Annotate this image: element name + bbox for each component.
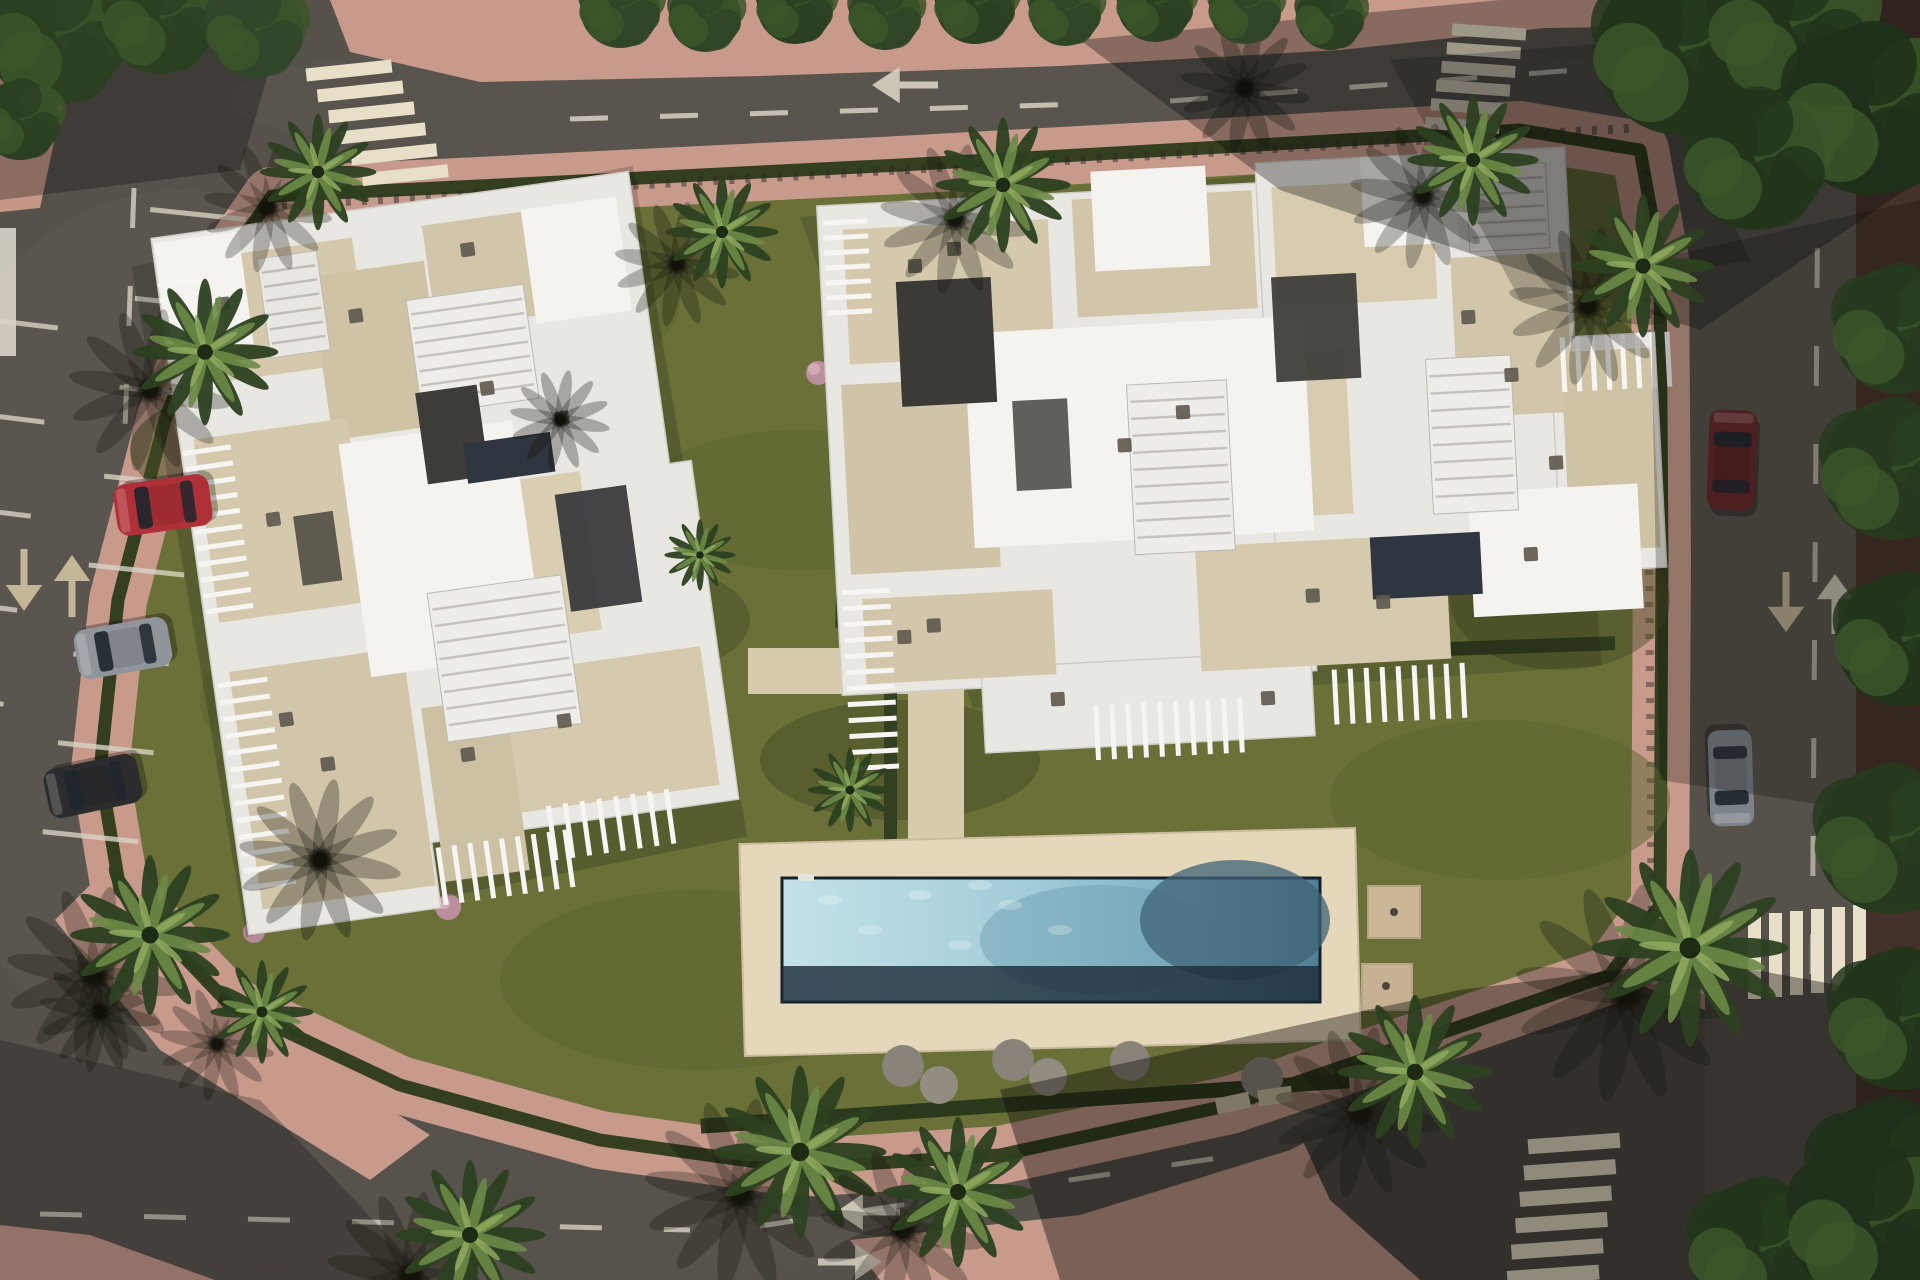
parasol [992,1039,1034,1081]
e [858,925,882,935]
courtyard-void [896,277,997,407]
parasol [882,1045,924,1087]
site-plan-svg [0,0,1920,1280]
pergola-louvers [1426,355,1519,514]
pool-floor-shadow [782,966,1320,1002]
pool-ladder [798,874,814,881]
skylight-glass [1370,532,1483,600]
e [908,890,932,900]
c [808,363,820,375]
scene-root [0,0,1920,1280]
e [1330,720,1670,880]
courtyard-void [1012,398,1072,491]
pergola-louvers [1426,355,1519,514]
balcony-railing [1332,663,1468,725]
courtyard-void [1271,273,1361,382]
c [1382,982,1390,990]
e [1048,925,1072,935]
aerial-site-render [0,0,1920,1280]
e [818,895,842,905]
e [998,900,1022,910]
balcony-railing [1332,663,1468,725]
rect [1090,166,1210,272]
pool-tree-shadow [1140,860,1330,980]
parasol [920,1066,958,1104]
e [948,940,972,950]
stop-band-left-edge [0,228,16,356]
c [1390,908,1398,916]
e [968,880,992,890]
rect [521,196,632,323]
